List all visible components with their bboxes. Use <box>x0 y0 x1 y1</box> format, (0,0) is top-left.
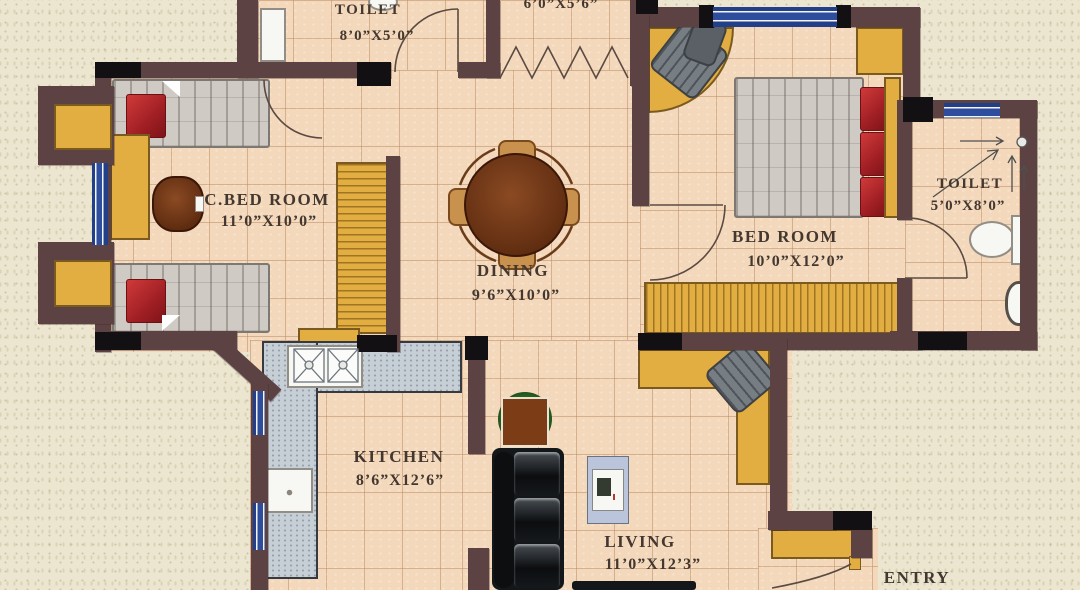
bedside-unit <box>856 27 904 75</box>
column <box>918 332 967 350</box>
room-dims-cbedroom: 11’0”X10’0” <box>221 213 317 231</box>
pillow <box>860 132 887 176</box>
stove <box>287 345 363 388</box>
column <box>903 97 933 122</box>
column <box>636 0 658 14</box>
column <box>638 333 682 350</box>
room-dims-toilet-right: 5’0”X8’0” <box>931 198 1006 215</box>
entry-shoe-cabinet <box>771 529 853 559</box>
room-dims-toilet-top: 8’0”X5’0” <box>340 28 415 45</box>
column <box>357 335 397 352</box>
window-kitchen-west-2 <box>253 503 265 550</box>
wardrobe-bedroom <box>644 282 906 334</box>
wc-bowl <box>969 221 1015 258</box>
wall-segment <box>768 511 836 530</box>
floor-plan: TOILET 8’0”X5’0” 6’0”X5’6” C.BED ROOM 11… <box>0 0 1080 590</box>
column <box>833 511 872 530</box>
room-dims-utility: 6’0”X5’6” <box>524 0 599 13</box>
study-desk-cbedroom <box>110 134 150 240</box>
bay-window-seat <box>54 104 112 150</box>
tv-icon <box>597 478 611 496</box>
pillow <box>126 94 166 138</box>
plant-pot <box>501 397 549 447</box>
room-label-dining: DINING <box>477 261 549 281</box>
entry-door-leaf <box>849 556 861 570</box>
wall-segment <box>851 528 872 558</box>
sofa-bottom <box>572 581 696 590</box>
wall-segment <box>770 338 787 530</box>
wall-segment <box>468 548 489 590</box>
room-dims-dining: 9’6”X10’0” <box>472 287 560 305</box>
column <box>699 5 714 28</box>
room-dims-bedroom: 10’0”X12’0” <box>747 253 844 271</box>
pillow <box>860 177 887 217</box>
column <box>465 336 488 360</box>
wall-segment <box>486 0 500 78</box>
window-kitchen-west-1 <box>253 391 265 435</box>
window-bedroom-north <box>713 7 837 27</box>
room-label-toilet-right: TOILET <box>937 176 1003 193</box>
room-label-cbedroom: C.BED ROOM <box>204 190 330 210</box>
sofa-cushion <box>514 498 560 542</box>
shower-tray <box>260 8 286 62</box>
table-notch <box>195 196 204 212</box>
wall-segment <box>632 14 649 206</box>
room-label-entry: ENTRY <box>884 568 950 588</box>
sofa-armrest <box>494 452 514 588</box>
room-dims-kitchen: 8’6”X12’6” <box>356 472 444 490</box>
room-label-living: LIVING <box>604 532 675 552</box>
column <box>836 5 851 28</box>
column <box>357 62 391 86</box>
pillow <box>860 87 887 131</box>
wardrobe-cbedroom <box>336 162 388 334</box>
room-label-toilet-top: TOILET <box>335 2 401 19</box>
blanket-fold <box>162 81 180 97</box>
window-toilet-right <box>944 103 1000 118</box>
pillow <box>126 279 166 323</box>
sink <box>266 468 313 513</box>
dining-table <box>464 153 568 257</box>
blanket-fold <box>162 315 180 331</box>
room-dims-living: 11’0”X12’3” <box>605 556 701 574</box>
column <box>95 62 141 78</box>
wall-segment <box>897 112 912 220</box>
wall-segment <box>386 156 400 352</box>
bay-window-seat <box>54 260 112 307</box>
room-label-bedroom: BED ROOM <box>732 227 838 247</box>
window-cbedroom-west <box>92 163 108 245</box>
sofa-cushion <box>514 452 560 496</box>
sofa-cushion <box>514 544 560 588</box>
column <box>95 332 141 350</box>
room-label-kitchen: KITCHEN <box>354 447 445 467</box>
double-bed <box>734 77 864 218</box>
wall-segment <box>1020 100 1037 350</box>
